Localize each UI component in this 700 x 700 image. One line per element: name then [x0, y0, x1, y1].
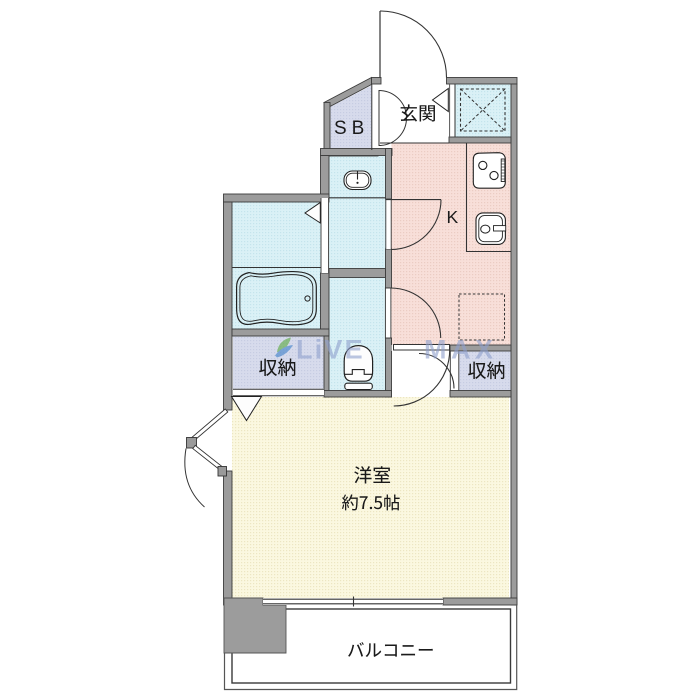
svg-text:MAX: MAX	[424, 335, 498, 365]
svg-text:LiVE: LiVE	[296, 335, 365, 365]
svg-text:K: K	[447, 207, 459, 227]
svg-text:SB: SB	[334, 118, 369, 139]
